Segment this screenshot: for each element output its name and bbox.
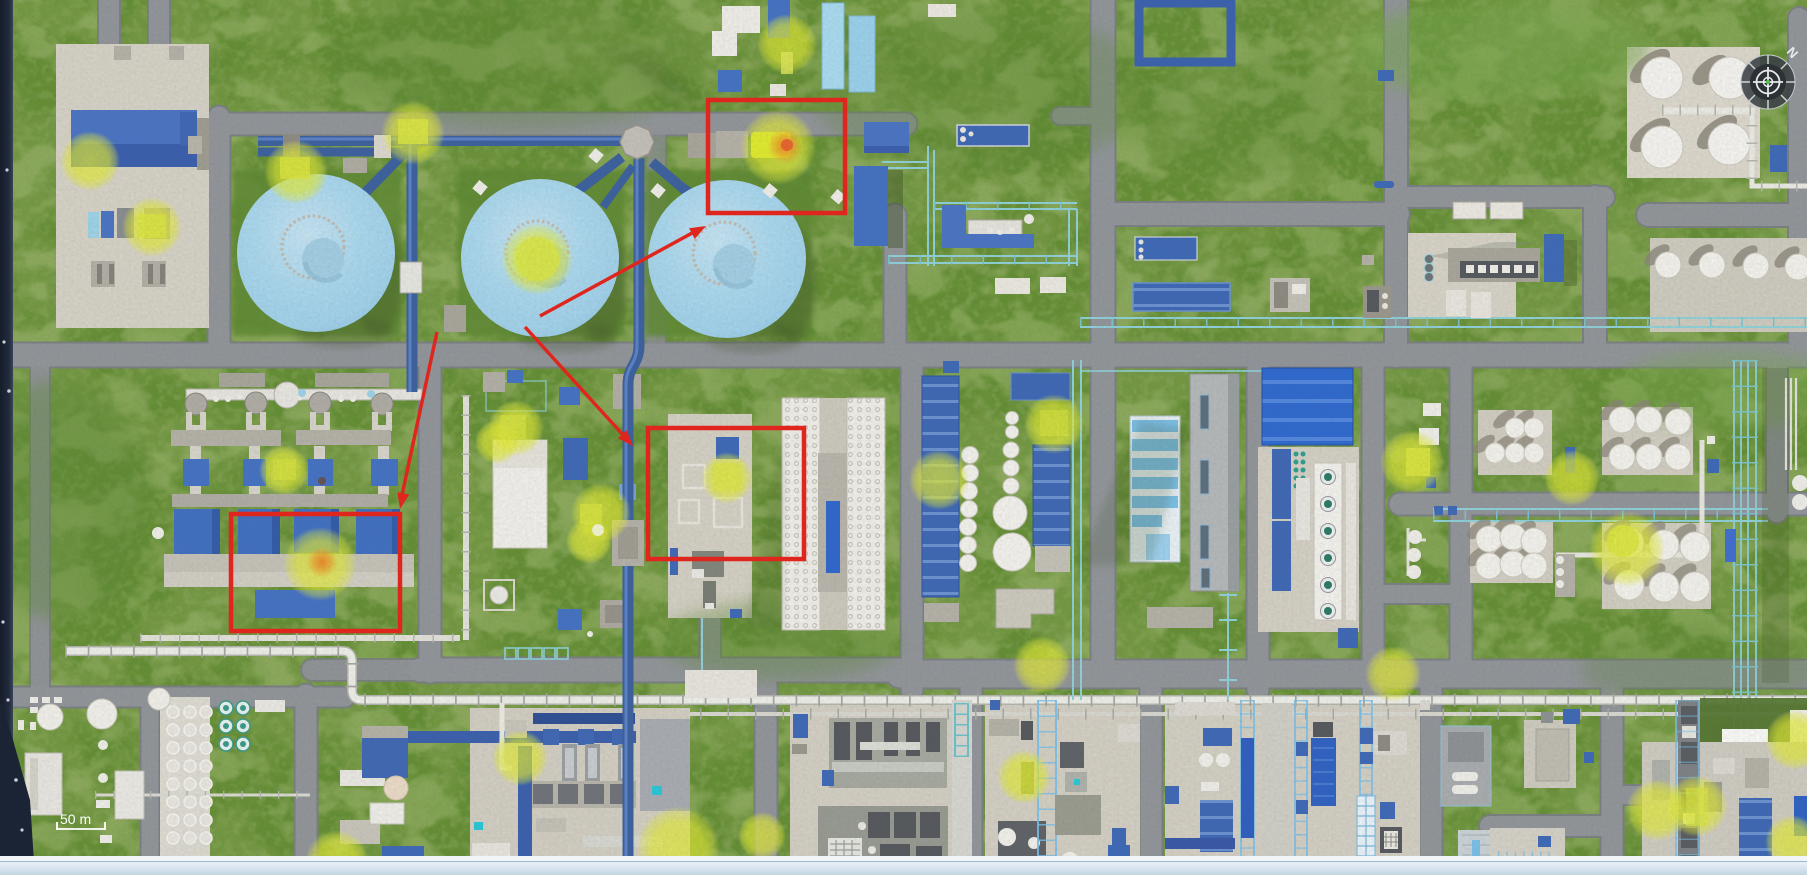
svg-text:50 m: 50 m [60, 811, 91, 827]
